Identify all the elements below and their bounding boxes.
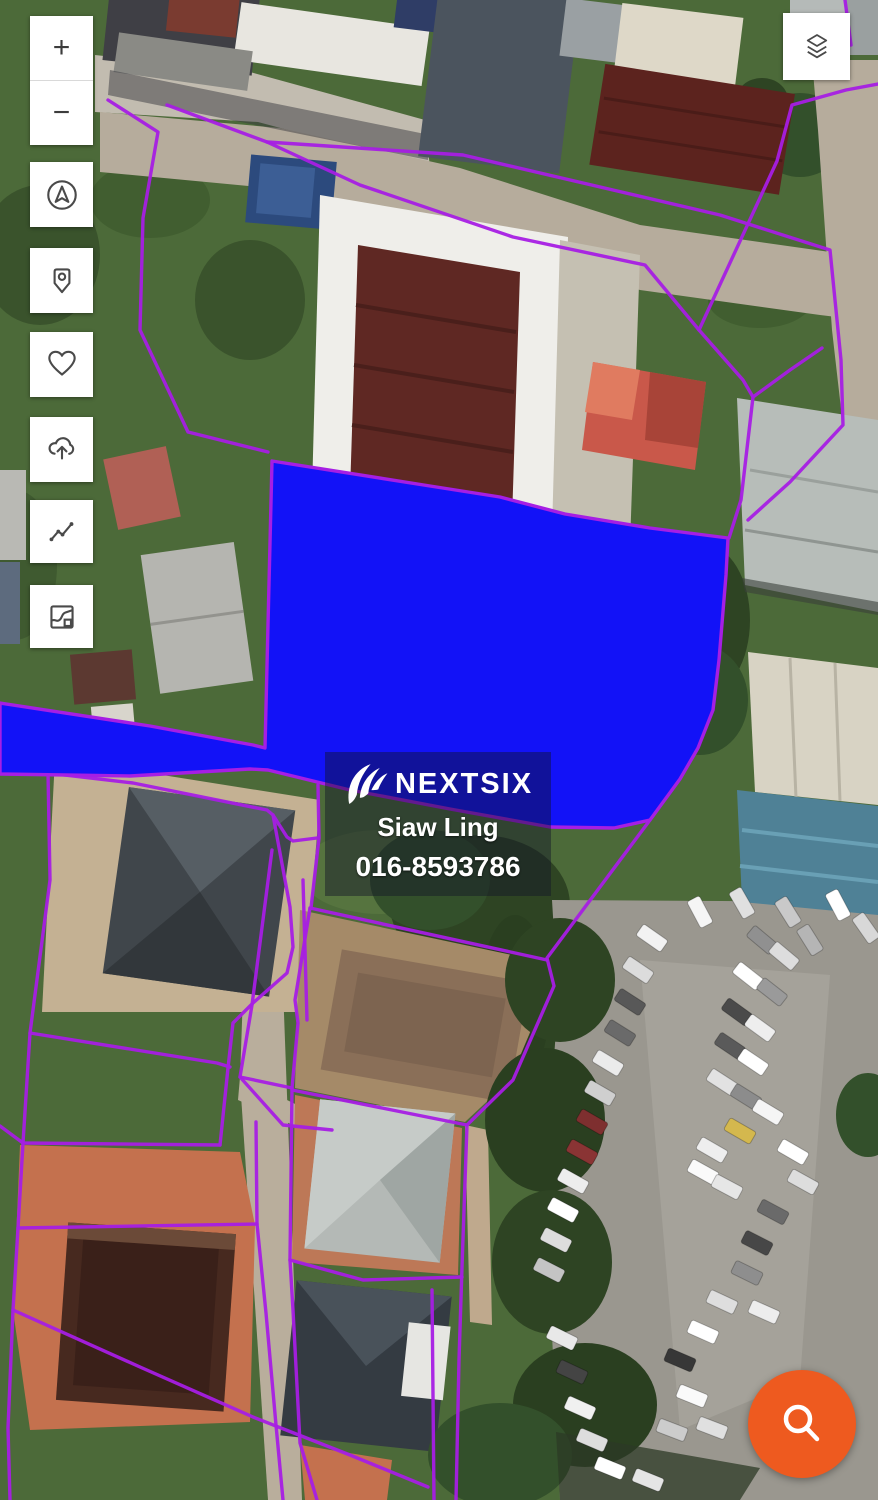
plus-icon: + xyxy=(53,31,71,65)
chart-button[interactable] xyxy=(30,500,93,563)
zoom-control: + − xyxy=(30,16,93,145)
search-fab[interactable] xyxy=(748,1370,856,1478)
heart-icon xyxy=(43,346,81,384)
brand-name: NEXTSIX xyxy=(395,768,533,801)
cloud-upload-icon xyxy=(43,431,81,469)
layers-icon xyxy=(794,24,840,70)
minus-icon: − xyxy=(53,96,71,130)
map-pin-icon xyxy=(43,262,81,300)
line-chart-icon xyxy=(43,513,81,551)
agent-phone: 016-8593786 xyxy=(355,851,520,883)
compass-locate-icon xyxy=(43,176,81,214)
pin-button[interactable] xyxy=(30,248,93,313)
zoom-in-button[interactable]: + xyxy=(30,16,93,80)
listing-marker-label[interactable]: NEXTSIX Siaw Ling 016-8593786 xyxy=(325,752,551,896)
layers-button[interactable] xyxy=(783,13,850,80)
map-snippet-icon xyxy=(43,598,81,636)
favorites-button[interactable] xyxy=(30,332,93,397)
upload-button[interactable] xyxy=(30,417,93,482)
locate-button[interactable] xyxy=(30,162,93,227)
zoom-out-button[interactable]: − xyxy=(30,81,93,145)
search-icon xyxy=(775,1397,829,1451)
brand-row: NEXTSIX xyxy=(343,758,533,810)
area-map-button[interactable] xyxy=(30,585,93,648)
nextsix-logo-icon xyxy=(343,761,389,807)
satellite-map-canvas[interactable] xyxy=(0,0,878,1500)
map-screen: NEXTSIX Siaw Ling 016-8593786 + − xyxy=(0,0,878,1500)
agent-name: Siaw Ling xyxy=(377,812,498,843)
